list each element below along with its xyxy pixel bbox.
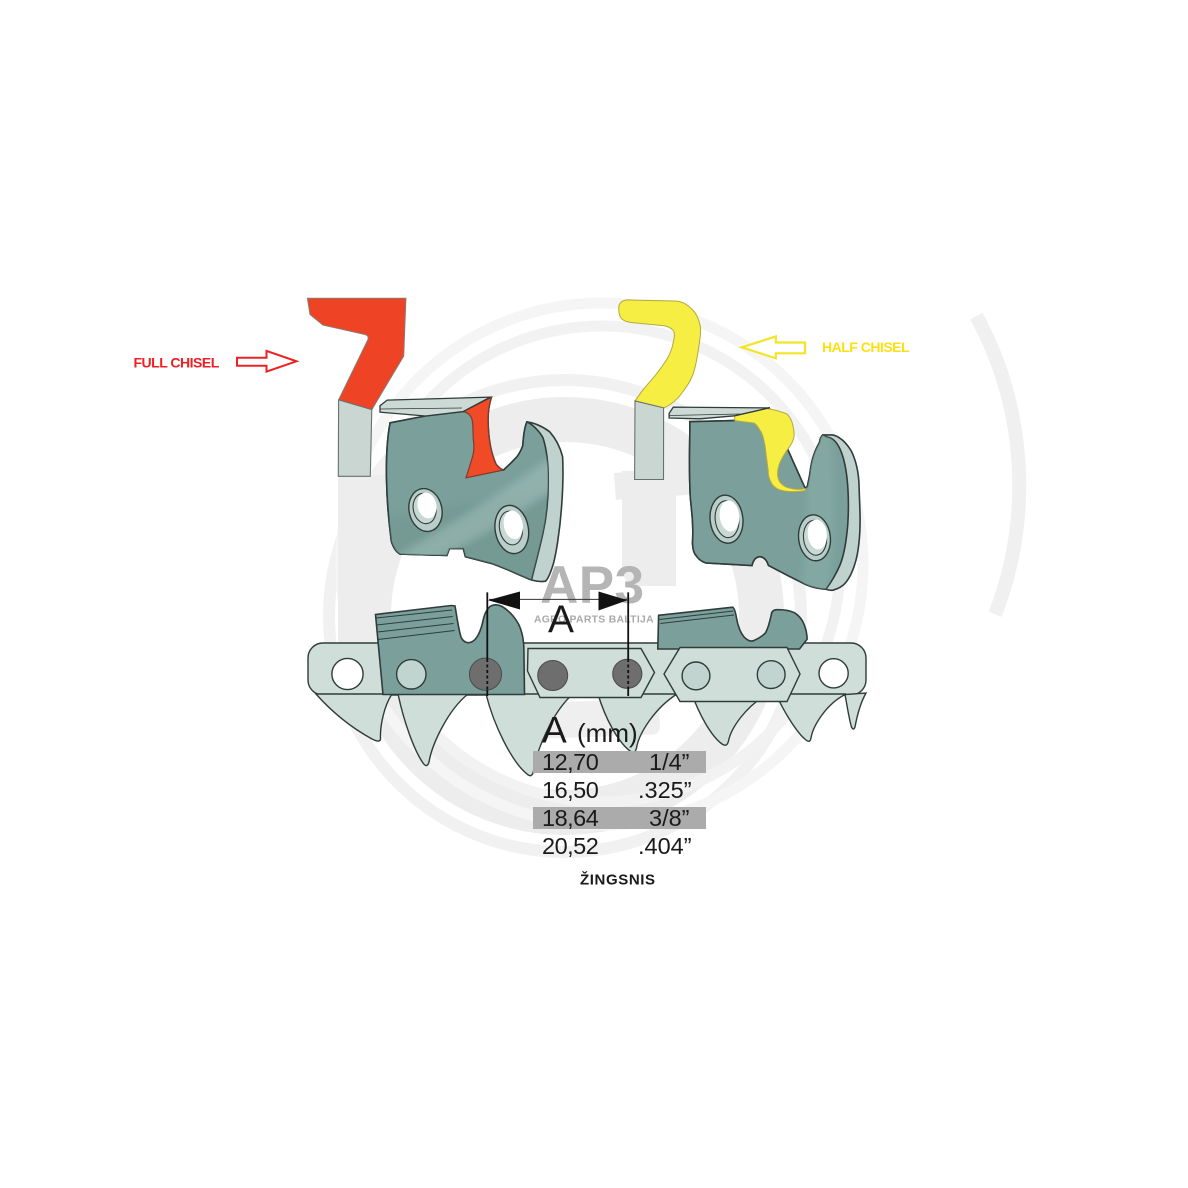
svg-text:.404”: .404” — [638, 833, 692, 859]
svg-text:16,50: 16,50 — [542, 777, 599, 803]
svg-text:(mm): (mm) — [577, 718, 638, 748]
svg-text:A: A — [548, 599, 574, 642]
svg-text:FULL CHISEL: FULL CHISEL — [134, 355, 220, 371]
svg-text:18,64: 18,64 — [542, 805, 599, 831]
svg-text:HALF CHISEL: HALF CHISEL — [822, 339, 910, 355]
svg-text:20,52: 20,52 — [542, 833, 598, 859]
svg-text:12,70: 12,70 — [542, 749, 599, 775]
svg-text:A: A — [542, 710, 567, 751]
svg-text:3/8”: 3/8” — [649, 805, 690, 831]
svg-text:ŽINGSNIS: ŽINGSNIS — [580, 871, 656, 889]
svg-text:1/4”: 1/4” — [649, 749, 690, 775]
svg-text:.325”: .325” — [638, 777, 692, 803]
